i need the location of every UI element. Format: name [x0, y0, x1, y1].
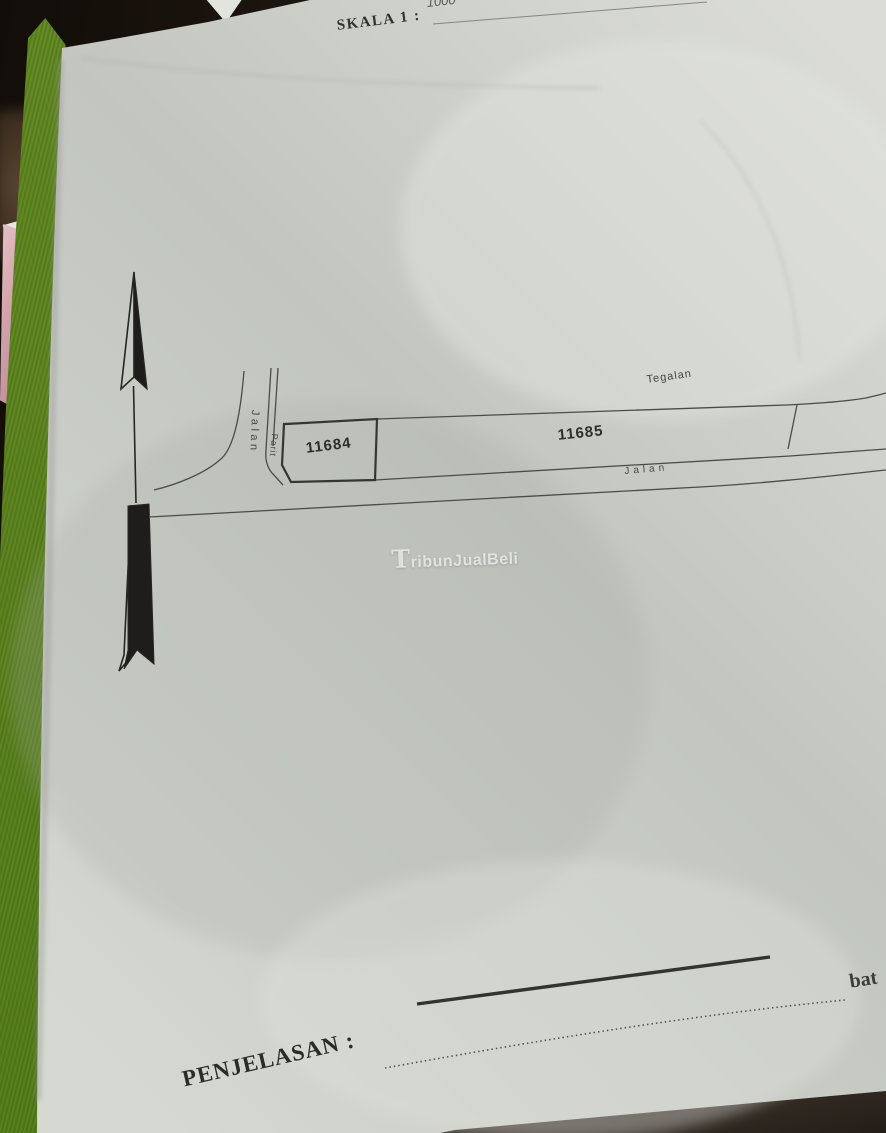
watermark-logo: TribunJualBeli: [391, 543, 519, 572]
road-name-vertical: Jalan: [247, 410, 260, 454]
ditch-name-vertical: Parit: [268, 433, 279, 457]
paper-highlight: [260, 860, 860, 1133]
photo-of-land-survey-document: P B: [0, 0, 886, 1133]
north-arrow-tail-fill: [124, 504, 154, 669]
boundary-note-text: bat: [848, 968, 879, 992]
